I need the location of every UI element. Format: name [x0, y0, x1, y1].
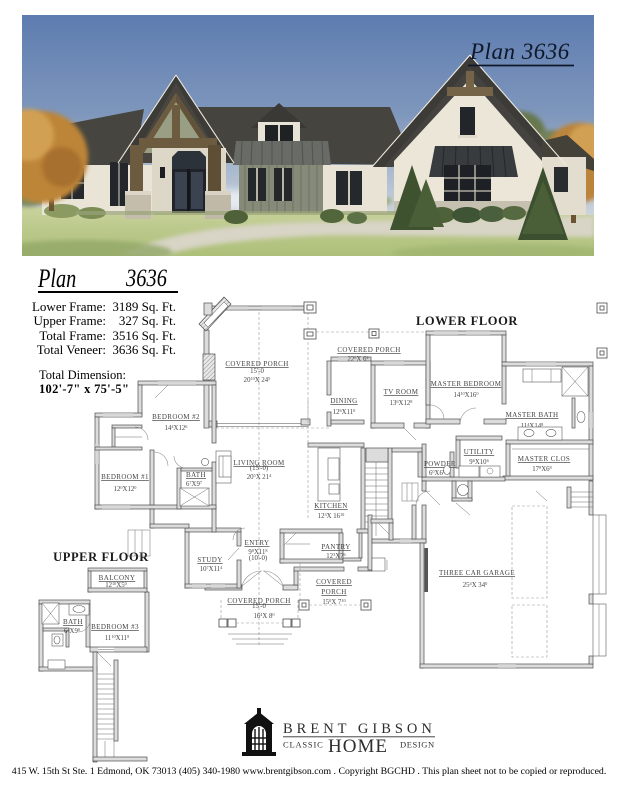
- svg-text:STUDY: STUDY: [197, 556, 222, 564]
- svg-text:COVERED PORCH: COVERED PORCH: [337, 346, 400, 354]
- svg-text:60X68: 60X68: [429, 469, 445, 477]
- svg-text:178X68: 178X68: [532, 465, 551, 473]
- svg-text:DESIGN: DESIGN: [400, 740, 435, 750]
- svg-text:BALCONY: BALCONY: [99, 574, 136, 582]
- svg-text:UTILITY: UTILITY: [464, 448, 494, 456]
- svg-text:BEDROOM #1: BEDROOM #1: [101, 473, 149, 481]
- svg-text:LOWER FLOOR: LOWER FLOOR: [416, 314, 518, 328]
- svg-text:164X 80: 164X 80: [253, 612, 274, 620]
- svg-text:HOME: HOME: [328, 736, 388, 757]
- svg-text:126X110: 126X110: [333, 408, 356, 416]
- svg-text:136X128: 136X128: [390, 399, 413, 407]
- svg-text:2010X 245: 2010X 245: [244, 376, 271, 384]
- svg-text:ENTRY: ENTRY: [245, 539, 270, 547]
- svg-text:BRENT GIBSON: BRENT GIBSON: [283, 721, 436, 737]
- svg-text:THREE CAR GARAGE: THREE CAR GARAGE: [439, 569, 515, 577]
- svg-text:254X 340: 254X 340: [463, 581, 488, 589]
- svg-text:COVERED PORCH: COVERED PORCH: [225, 360, 288, 368]
- svg-text:BATH: BATH: [63, 618, 83, 626]
- svg-text:PANTRY: PANTRY: [321, 543, 350, 551]
- svg-text:PORCH: PORCH: [321, 588, 346, 596]
- svg-text:15'-0: 15'-0: [252, 603, 266, 610]
- svg-text:BEDROOM #2: BEDROOM #2: [152, 413, 200, 421]
- svg-text:(10'-0): (10'-0): [249, 555, 267, 562]
- svg-text:1410X160: 1410X160: [454, 391, 479, 399]
- svg-text:MASTER BATH: MASTER BATH: [506, 411, 559, 419]
- svg-text:205X 214: 205X 214: [247, 473, 272, 481]
- svg-text:(15'-0): (15'-0): [250, 465, 268, 472]
- svg-text:BATH: BATH: [186, 471, 206, 479]
- svg-text:144X126: 144X126: [165, 424, 189, 432]
- svg-text:120X120: 120X120: [114, 485, 137, 493]
- svg-text:KITCHEN: KITCHEN: [314, 502, 348, 510]
- svg-text:123X 1610: 123X 1610: [318, 512, 345, 520]
- svg-text:BEDROOM #3: BEDROOM #3: [91, 623, 139, 631]
- svg-text:67X97: 67X97: [186, 480, 203, 488]
- svg-text:228X 64: 228X 64: [347, 355, 369, 363]
- svg-text:COVERED: COVERED: [316, 578, 352, 586]
- svg-text:15'-0: 15'-0: [250, 368, 264, 375]
- svg-text:1110X118: 1110X118: [105, 634, 129, 642]
- svg-text:POWDER: POWDER: [424, 460, 456, 468]
- svg-text:107X114: 107X114: [200, 565, 223, 573]
- svg-text:MASTER CLOS: MASTER CLOS: [518, 455, 570, 463]
- svg-text:TV ROOM: TV ROOM: [384, 388, 419, 396]
- svg-text:96X106: 96X106: [469, 458, 489, 466]
- svg-text:CLASSIC: CLASSIC: [283, 740, 324, 750]
- svg-text:DINING: DINING: [330, 397, 357, 405]
- svg-text:MASTER BEDROOM: MASTER BEDROOM: [431, 380, 502, 388]
- svg-text:64X90: 64X90: [64, 627, 80, 635]
